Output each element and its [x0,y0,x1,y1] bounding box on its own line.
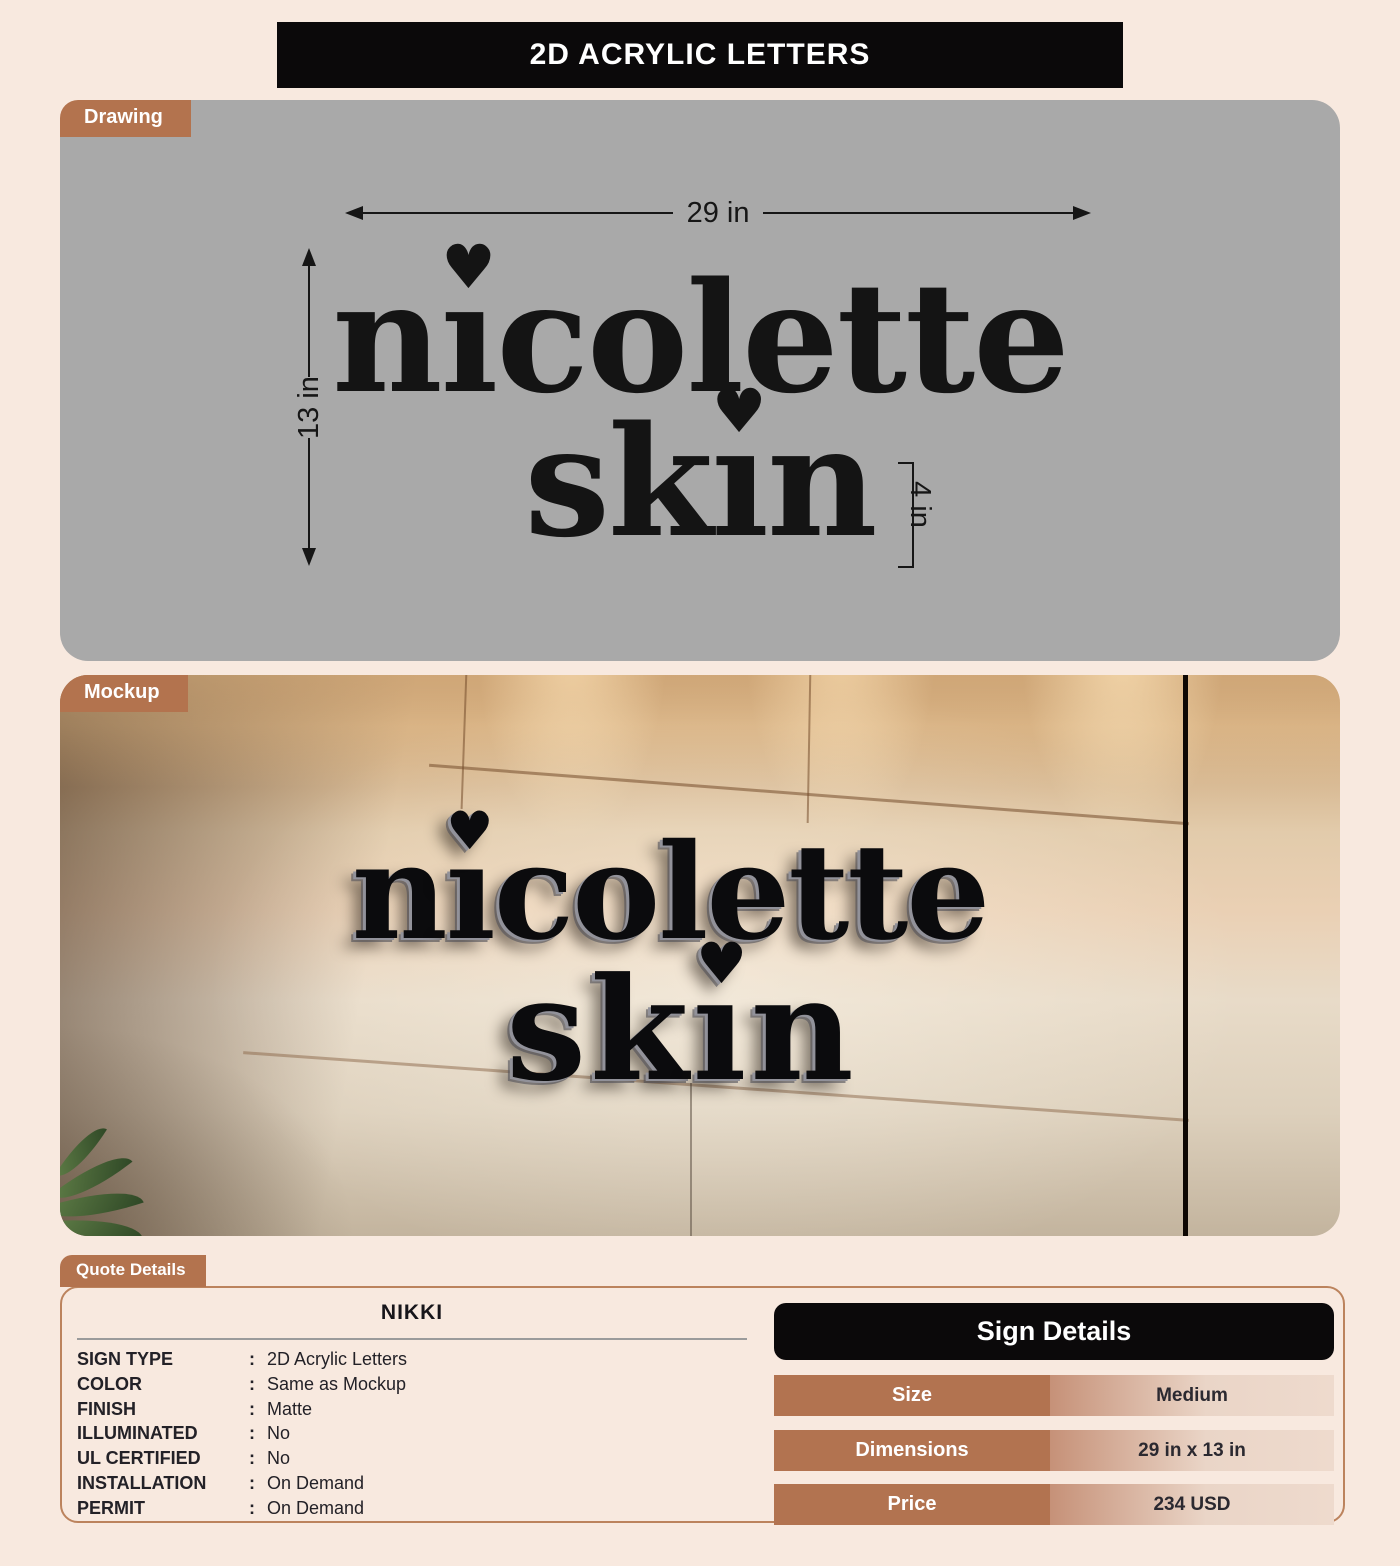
quote-field-row: ILLUMINATED:No [77,1421,747,1446]
drawing-tab-label: Drawing [60,100,191,137]
sign-details-row-dimensions: Dimensions 29 in x 13 in [774,1430,1334,1471]
sign-details-header: Sign Details [774,1303,1334,1360]
quote-field-row: SIGN TYPE:2D Acrylic Letters [77,1347,747,1372]
sign-details-title: Sign Details [977,1316,1132,1347]
quote-details-section: Quote Details NIKKI SIGN TYPE:2D Acrylic… [60,1255,1345,1523]
customer-name: NIKKI [77,1301,747,1325]
divider [77,1338,747,1340]
heart-icon: ♥ [441,238,496,299]
arrow-right-icon [1073,206,1091,220]
quote-field-row: UL CERTIFIED:No [77,1446,747,1471]
quote-field-row: COLOR:Same as Mockup [77,1372,747,1397]
letter-height-label: 4 in [903,481,936,528]
sign-details-row-size: Size Medium [774,1375,1334,1416]
heart-icon: ♥ [446,806,493,859]
width-dimension-label: 29 in [673,197,764,230]
heart-icon: ♥ [712,382,767,443]
sign-details-row-price: Price 234 USD [774,1484,1334,1525]
quote-sheet-page: 2D ACRYLIC LETTERS Drawing 29 in 13 in n… [0,0,1400,1566]
mockup-panel: nı♥colette skı♥n Mockup [60,675,1340,1236]
page-title-bar: 2D ACRYLIC LETTERS [277,22,1123,88]
quote-details-tab-label: Quote Details [60,1255,206,1287]
drawing-panel: Drawing 29 in 13 in nı♥colette skı♥n 4 i… [60,100,1340,661]
drawing-logo-line2: skı♥n [60,406,1340,558]
quote-details-card: NIKKI SIGN TYPE:2D Acrylic Letters COLOR… [60,1286,1345,1523]
quote-fields-list: SIGN TYPE:2D Acrylic Letters COLOR:Same … [77,1347,747,1521]
heart-icon: ♥ [696,936,747,993]
quote-field-row: INSTALLATION:On Demand [77,1471,747,1496]
arrow-left-icon [345,206,363,220]
mockup-sign-line1: nı♥colette [60,827,1310,959]
page-title: 2D ACRYLIC LETTERS [530,38,871,72]
mockup-tab-label: Mockup [60,675,188,712]
mockup-sign-line2: skı♥n [60,959,1322,1101]
quote-field-row: FINISH:Matte [77,1397,747,1422]
width-dimension: 29 in [345,197,1091,229]
quote-field-row: PERMIT:On Demand [77,1496,747,1521]
